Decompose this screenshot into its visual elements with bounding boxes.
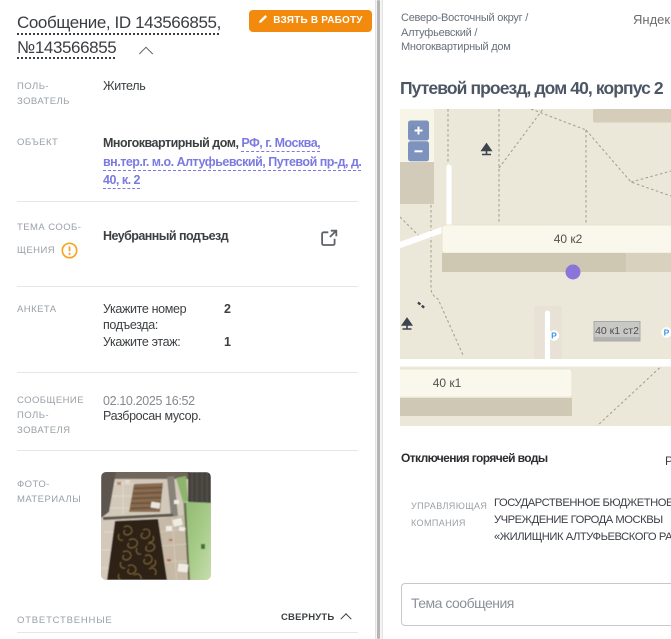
svg-text:P: P bbox=[551, 331, 557, 341]
svg-text:40 к1: 40 к1 bbox=[433, 376, 462, 390]
svg-text:P: P bbox=[664, 328, 670, 338]
svg-text:40 к1 ст2: 40 к1 ст2 bbox=[595, 325, 639, 337]
svg-text:40 к2: 40 к2 bbox=[554, 232, 583, 246]
